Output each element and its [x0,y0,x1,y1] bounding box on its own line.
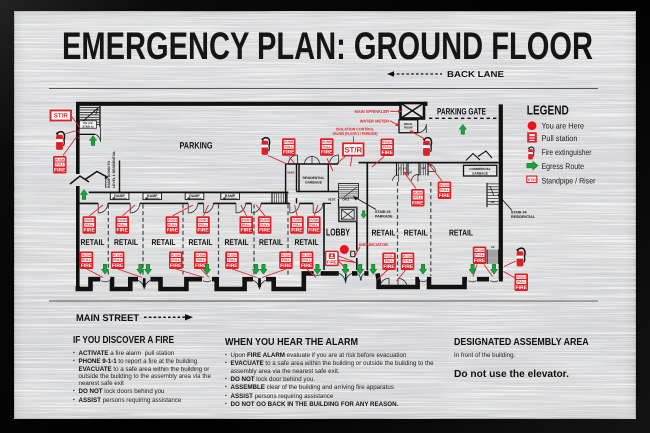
svg-text:PUSH: PUSH [403,254,413,258]
svg-text:PULL: PULL [284,145,293,149]
svg-text:LEGEND: LEGEND [527,103,569,118]
svg-text:FIRE: FIRE [259,228,271,234]
svg-text:RETAIL: RETAIL [372,228,396,238]
svg-text:PUSH: PUSH [242,218,252,222]
svg-text:FIRE: FIRE [112,263,124,269]
svg-text:FIRE: FIRE [280,263,292,269]
svg-text:RETAIL: RETAIL [114,237,138,247]
svg-text:PULL: PULL [82,258,91,262]
svg-text:PULL: PULL [413,196,422,200]
svg-text:PUSH: PUSH [284,140,294,144]
svg-text:PUSH: PUSH [227,253,237,257]
svg-text:PULL: PULL [199,223,208,227]
svg-text:PARKING: PARKING [180,141,213,151]
svg-text:PULL: PULL [113,258,122,262]
svg-text:Pull station: Pull station [542,134,578,143]
svg-text:UP: UP [422,166,426,170]
svg-text:UP: UP [491,246,495,249]
svg-text:LEVEL 1 RESIDENTIAL: LEVEL 1 RESIDENTIAL [112,151,116,188]
svg-text:MAIN STREET: MAIN STREET [76,313,139,324]
svg-text:PUSH: PUSH [55,158,65,162]
svg-text:RETAIL: RETAIL [295,237,319,247]
svg-text:PUSH: PUSH [196,253,206,257]
svg-text:FIRE: FIRE [54,167,66,173]
svg-text:PUSH: PUSH [85,218,95,222]
svg-text:FIRE: FIRE [283,150,295,156]
svg-text:PULL: PULL [440,188,449,192]
svg-text:PULL: PULL [228,258,237,262]
svg-text:PUSH: PUSH [113,253,123,257]
svg-text:PULL: PULL [475,253,484,257]
svg-text:PULL: PULL [517,280,526,284]
svg-text:PULL: PULL [403,259,412,263]
svg-text:FIRE: FIRE [170,263,182,269]
svg-text:FIRE: FIRE [308,228,320,234]
svg-text:ST/R: ST/R [528,178,537,182]
svg-text:PULL: PULL [242,223,251,227]
svg-text:RESIDENTIAL: RESIDENTIAL [303,176,325,180]
svg-text:FIRE: FIRE [167,228,179,234]
svg-text:PUSH: PUSH [440,183,450,187]
svg-text:PULL: PULL [282,258,291,262]
svg-text:PULL: PULL [171,258,180,262]
svg-text:Standpipe / Riser: Standpipe / Riser [542,176,596,185]
svg-text:PULL: PULL [302,258,311,262]
svg-text:PULL: PULL [322,145,331,149]
svg-text:GARBAGE: GARBAGE [472,171,488,175]
svg-text:PUSH: PUSH [517,275,527,279]
svg-text:GARBAGE: GARBAGE [305,181,323,185]
svg-text:PUSH: PUSH [475,248,485,252]
svg-text:PUSH: PUSH [198,218,208,222]
svg-text:ST #7: ST #7 [399,167,407,171]
svg-text:FIRE: FIRE [412,200,424,206]
svg-text:PULL: PULL [85,223,94,227]
svg-text:PULL: PULL [383,145,392,149]
svg-text:STAIR #2: STAIR #2 [82,125,94,128]
svg-text:PULL: PULL [55,163,64,167]
svg-text:RAMP: RAMP [147,194,158,198]
svg-text:PUSH: PUSH [292,218,302,222]
svg-text:FIRE: FIRE [84,228,96,234]
svg-text:RAMP: RAMP [114,194,125,198]
svg-text:VEST.: VEST. [287,171,295,175]
svg-text:PARKING GATE: PARKING GATE [437,107,486,117]
svg-text:PUSH: PUSH [82,253,92,257]
svg-text:STAIR #3: STAIR #3 [375,210,391,214]
svg-text:PULL: PULL [293,223,302,227]
svg-text:RETAIL: RETAIL [259,237,283,247]
svg-text:FIRE: FIRE [402,264,414,270]
svg-text:RAMP: RAMP [225,194,236,198]
svg-text:FIRE: FIRE [117,228,129,234]
svg-text:PULL: PULL [385,259,394,263]
svg-text:PUSH: PUSH [260,218,270,222]
svg-text:FIRE: FIRE [474,258,486,264]
svg-text:PULL: PULL [310,223,319,227]
svg-text:PUSH: PUSH [168,218,178,222]
svg-text:RETAIL: RETAIL [81,237,105,247]
svg-text:PUSH: PUSH [302,253,312,257]
svg-text:PUSH: PUSH [413,191,423,195]
svg-text:You are Here: You are Here [542,122,585,131]
svg-text:PULL: PULL [196,258,205,262]
svg-text:FIRE: FIRE [327,260,337,265]
svg-text:FIRE: FIRE [241,228,253,234]
svg-text:Fire extinguisher: Fire extinguisher [542,148,592,157]
svg-text:FIRE: FIRE [516,285,528,291]
svg-text:LOBBY: LOBBY [326,228,350,239]
svg-text:RETAIL: RETAIL [189,237,213,247]
svg-text:VALVES (FLOOR 1 / PARKADE): VALVES (FLOOR 1 / PARKADE) [333,131,379,136]
svg-text:FIRE: FIRE [197,228,209,234]
svg-text:ROOM: ROOM [404,127,413,130]
svg-text:UP: UP [408,171,412,175]
svg-text:PUSH: PUSH [383,140,393,144]
svg-text:Egress Route: Egress Route [542,162,585,171]
svg-text:WATER METER: WATER METER [360,118,389,123]
svg-text:FIRE: FIRE [226,263,238,269]
svg-text:PUSH: PUSH [309,218,319,222]
svg-text:FIRE: FIRE [439,193,451,199]
svg-text:PUSH: PUSH [384,254,394,258]
svg-text:RETAIL: RETAIL [225,237,249,247]
svg-text:FIRE: FIRE [383,264,395,270]
svg-text:ON 2: ON 2 [342,197,349,201]
svg-text:PULL: PULL [118,223,127,227]
svg-text:VEST.: VEST. [328,197,336,201]
svg-text:EMERGENCY PLAN: GROUND FLOOR: EMERGENCY PLAN: GROUND FLOOR [62,25,593,68]
svg-text:FIRE: FIRE [321,150,333,156]
svg-text:RAMP: RAMP [189,194,200,198]
svg-text:MAIN SPRINKLER: MAIN SPRINKLER [355,109,390,114]
svg-text:PULL: PULL [260,223,269,227]
svg-text:FIRE: FIRE [81,263,93,269]
svg-text:UP: UP [491,201,495,204]
svg-text:PUSH: PUSH [322,140,332,144]
svg-text:STAIR #4: STAIR #4 [511,211,527,215]
svg-text:PUSH: PUSH [118,218,128,222]
svg-text:RETAIL: RETAIL [404,228,428,238]
svg-text:RESIDENTIAL: RESIDENTIAL [511,215,536,219]
svg-text:BACK LANE: BACK LANE [447,69,504,79]
svg-text:RETAIL: RETAIL [152,237,176,247]
svg-text:ST/R: ST/R [54,113,69,120]
svg-text:FIRE: FIRE [291,228,303,234]
svg-text:MECH.: MECH. [404,123,413,126]
svg-text:RETAIL: RETAIL [449,228,473,238]
svg-text:ANNUNCIATOR: ANNUNCIATOR [359,242,389,247]
svg-text:PULL: PULL [168,223,177,227]
svg-text:FIRE: FIRE [301,263,313,269]
svg-text:PUSH: PUSH [281,253,291,257]
svg-text:PARKADE: PARKADE [375,215,393,219]
svg-text:PUSH: PUSH [171,253,181,257]
svg-text:RAMP DOWN TO: RAMP DOWN TO [107,160,111,188]
svg-text:ST/R: ST/R [344,145,362,154]
svg-text:FIRE: FIRE [382,150,394,156]
